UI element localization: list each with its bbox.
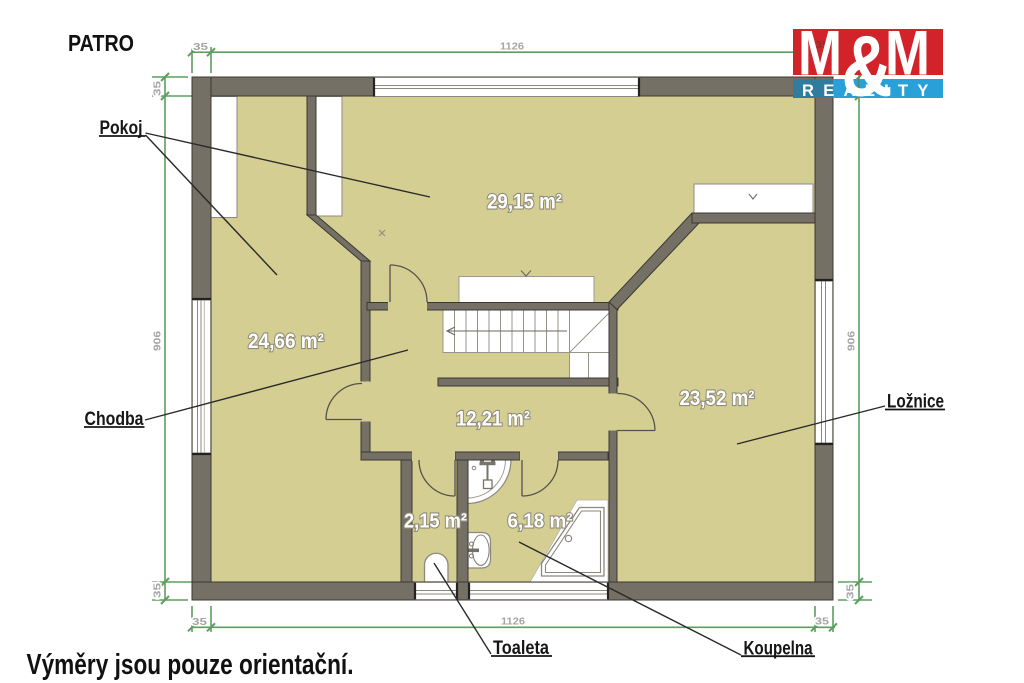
svg-text:35: 35 xyxy=(846,583,857,599)
svg-text:Výměry jsou pouze orientační.: Výměry jsou pouze orientační. xyxy=(27,649,354,681)
svg-text:23,52 m²: 23,52 m² xyxy=(680,387,755,410)
svg-text:29,15 m²: 29,15 m² xyxy=(487,191,562,214)
svg-text:35: 35 xyxy=(153,582,164,598)
svg-text:PATRO: PATRO xyxy=(68,30,134,56)
svg-text:35: 35 xyxy=(815,616,830,627)
svg-text:35: 35 xyxy=(193,42,209,53)
svg-text:24,66 m²: 24,66 m² xyxy=(248,330,324,353)
svg-text:&: & xyxy=(842,19,893,115)
svg-text:1126: 1126 xyxy=(500,42,524,53)
svg-text:906: 906 xyxy=(153,330,164,351)
svg-text:906: 906 xyxy=(847,330,858,351)
svg-text:M: M xyxy=(798,19,842,89)
svg-text:1126: 1126 xyxy=(501,616,525,627)
svg-text:12,21 m²: 12,21 m² xyxy=(456,408,530,431)
svg-text:REALITY: REALITY xyxy=(802,82,938,100)
svg-text:35: 35 xyxy=(153,80,164,96)
svg-text:6,18 m²: 6,18 m² xyxy=(508,511,573,533)
svg-text:35: 35 xyxy=(192,617,208,628)
svg-text:2,15 m²: 2,15 m² xyxy=(404,511,467,533)
